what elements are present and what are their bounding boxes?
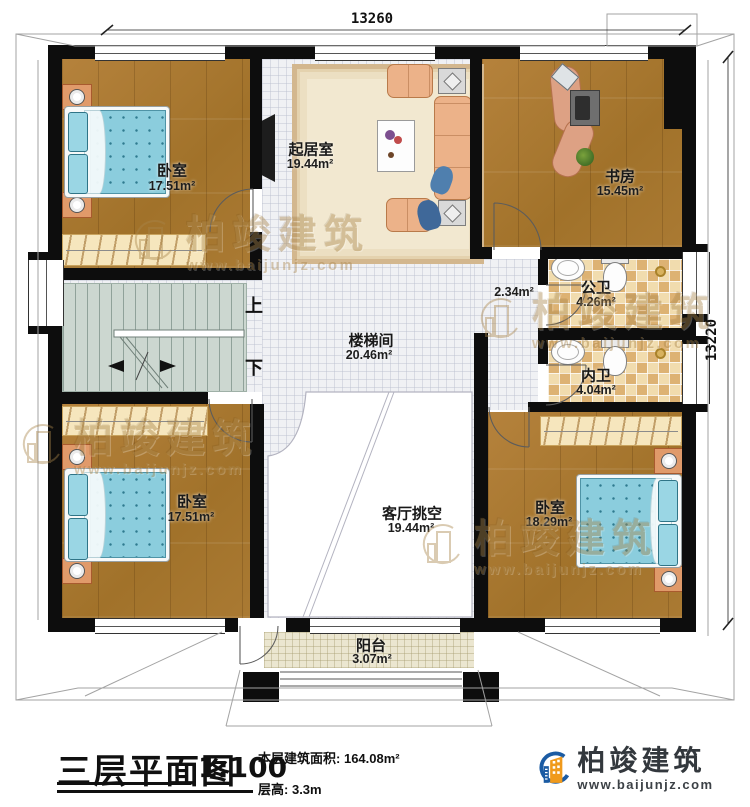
logo-brand-text: 柏竣建筑 xyxy=(577,745,705,776)
coffee-table xyxy=(377,120,415,172)
window xyxy=(315,45,435,61)
public-bath-area: 4.26m² xyxy=(576,295,616,309)
study-area: 15.45m² xyxy=(597,184,644,198)
pillow xyxy=(658,524,678,566)
pillow xyxy=(658,480,678,522)
table-flowers xyxy=(394,136,402,144)
window xyxy=(95,618,225,634)
door-opening xyxy=(238,618,286,632)
window xyxy=(545,618,660,634)
logo-url-text: www.baijunjz.com xyxy=(577,777,713,792)
company-logo: 柏竣建筑 www.baijunjz.com xyxy=(536,740,750,800)
floor-drain xyxy=(655,266,666,277)
title-underline xyxy=(57,782,191,785)
side-table xyxy=(438,68,466,94)
stairwell-area: 20.46m² xyxy=(346,348,393,362)
pillow xyxy=(68,112,88,152)
floor-area-key: 本层建筑面积: xyxy=(258,751,340,766)
nightstand xyxy=(654,448,684,474)
stairs-down-label: 下 xyxy=(245,354,263,380)
wall-segment xyxy=(48,45,62,632)
title-underline xyxy=(57,790,253,793)
window xyxy=(310,618,460,634)
dimension-top: 13260 xyxy=(351,11,393,27)
window-cap xyxy=(682,244,708,252)
wall-segment xyxy=(538,259,548,285)
window xyxy=(28,260,64,326)
window xyxy=(95,45,225,61)
stairs-up-label: 上 xyxy=(245,292,263,318)
side-table xyxy=(438,200,466,226)
table-flowers xyxy=(388,152,394,158)
living-area: 19.44m² xyxy=(287,157,334,171)
wardrobe xyxy=(62,406,208,436)
window xyxy=(682,252,710,314)
floor-plan-canvas: 13260 13220 卧室 17.51m² 起居室 19.44m² 书房 15… xyxy=(0,0,750,807)
floor-height-label: 层高: 3.3m xyxy=(258,779,322,798)
void-area: 19.44m² xyxy=(388,521,435,535)
floor-height-value: 3.3m xyxy=(292,782,322,797)
wall-segment xyxy=(528,402,696,412)
bed-mattress xyxy=(580,478,656,564)
armchair xyxy=(387,64,433,98)
corridor-area: 2.34m² xyxy=(494,285,534,299)
wall-segment xyxy=(48,268,262,280)
wall-segment xyxy=(48,392,208,404)
wall-segment xyxy=(250,404,264,618)
wardrobe xyxy=(540,416,682,446)
bedroom-bl-label: 卧室 xyxy=(177,491,207,512)
dimension-right: 13220 xyxy=(704,319,720,361)
floor-area-value: 164.08m² xyxy=(344,751,400,766)
wall-segment xyxy=(474,333,488,618)
floor-area-label: 本层建筑面积: 164.08m² xyxy=(258,748,400,767)
wardrobe xyxy=(62,234,206,266)
pillow xyxy=(68,518,88,560)
porch-column xyxy=(463,672,499,702)
sink xyxy=(551,339,585,365)
wall-segment xyxy=(538,328,696,340)
bedroom-bl-area: 17.51m² xyxy=(168,510,215,524)
wall-segment xyxy=(250,59,262,189)
bedroom-tl-label: 卧室 xyxy=(157,160,187,181)
bedroom-br-area: 18.29m² xyxy=(526,515,573,529)
floor-height-key: 层高: xyxy=(258,782,288,797)
pillow xyxy=(68,474,88,516)
floor-drain xyxy=(655,348,666,359)
logo-icon xyxy=(536,740,569,800)
wall-segment xyxy=(540,247,696,259)
staircase xyxy=(62,283,247,392)
balcony-area: 3.07m² xyxy=(352,652,392,666)
computer-monitor xyxy=(570,90,600,126)
wall-segment xyxy=(470,247,492,259)
wall-segment xyxy=(538,340,548,364)
window-cap xyxy=(28,326,62,334)
nightstand xyxy=(62,444,92,470)
balcony-railing xyxy=(280,672,462,686)
window-cap xyxy=(682,404,708,412)
window xyxy=(520,45,648,61)
pillow xyxy=(68,154,88,194)
wall-segment xyxy=(470,59,482,259)
tv xyxy=(262,114,275,182)
nightstand xyxy=(654,566,684,592)
potted-plant xyxy=(576,148,594,166)
private-bath-area: 4.04m² xyxy=(576,383,616,397)
corner-pillar xyxy=(664,45,696,129)
window-cap xyxy=(28,252,62,260)
bedroom-tl-area: 17.51m² xyxy=(149,179,196,193)
porch-column xyxy=(243,672,279,702)
